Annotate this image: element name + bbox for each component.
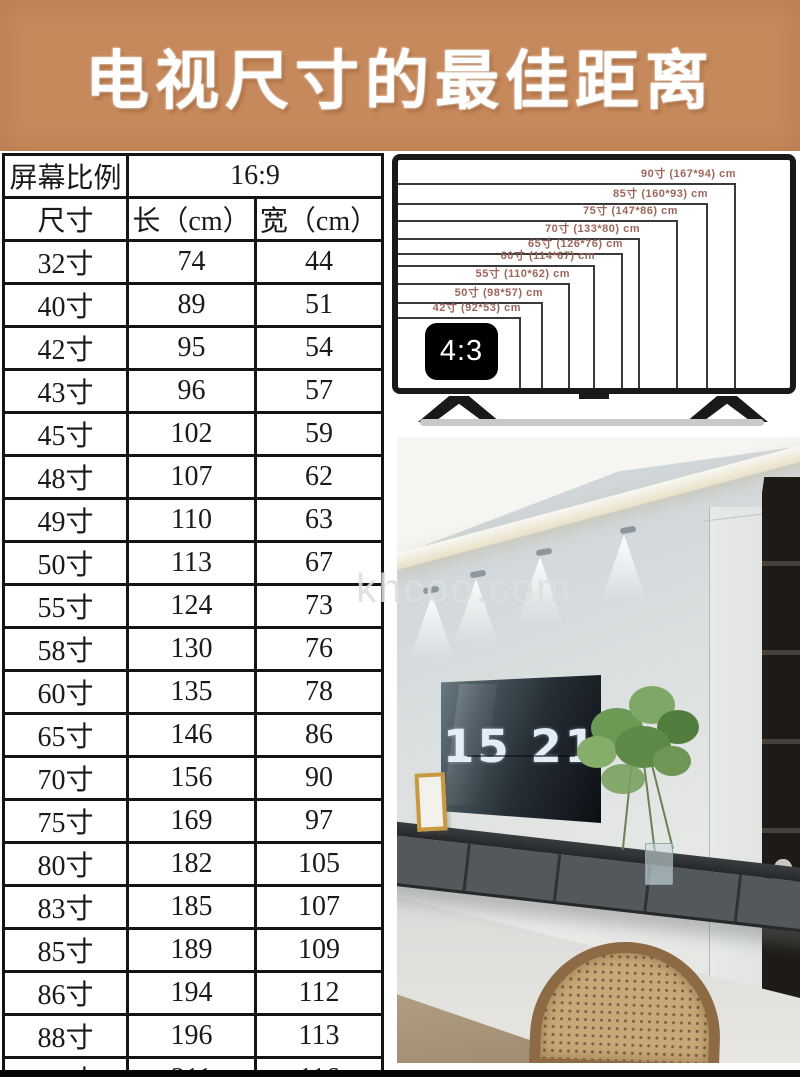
width-cell: 105	[256, 843, 383, 886]
table-row: 86寸194112	[4, 972, 383, 1015]
table-row: 88寸196113	[4, 1015, 383, 1058]
width-cell: 97	[256, 800, 383, 843]
size-cell: 83寸	[4, 886, 128, 929]
table-row: 58寸13076	[4, 628, 383, 671]
wall-panel	[709, 507, 762, 1059]
width-cell: 86	[256, 714, 383, 757]
width-cell: 107	[256, 886, 383, 929]
table-row: 45寸10259	[4, 413, 383, 456]
tv-size-label: 90寸 (167*94) cm	[641, 169, 736, 180]
watermark: khcoo.com	[356, 565, 572, 612]
tv-outline: 4:3 90寸 (167*94) cm85寸 (160*93) cm75寸 (1…	[392, 154, 796, 394]
title-banner: 电视尺寸的最佳距离	[0, 0, 800, 151]
size-table: 屏幕比例 16:9 尺寸 长（cm） 宽（cm） 32寸744440寸89514…	[2, 153, 384, 1077]
tv-size-rect	[398, 317, 521, 388]
size-cell: 48寸	[4, 456, 128, 499]
col-header-size: 尺寸	[4, 198, 128, 241]
length-cell: 110	[128, 499, 256, 542]
infographic-page: 电视尺寸的最佳距离 屏幕比例 16:9 尺寸 长（cm） 宽（cm） 32寸74…	[0, 0, 800, 1077]
table-row: 70寸15690	[4, 757, 383, 800]
table-row: 65寸14686	[4, 714, 383, 757]
ratio-label-cell: 屏幕比例	[4, 155, 128, 198]
table-row: 42寸9554	[4, 327, 383, 370]
size-cell: 80寸	[4, 843, 128, 886]
table-header-ratio-row: 屏幕比例 16:9	[4, 155, 383, 198]
tv-size-label: 70寸 (133*80) cm	[545, 224, 640, 235]
width-cell: 59	[256, 413, 383, 456]
width-cell: 78	[256, 671, 383, 714]
length-cell: 156	[128, 757, 256, 800]
width-cell: 57	[256, 370, 383, 413]
table-body: 32寸744440寸895142寸955443寸965745寸1025948寸1…	[4, 241, 383, 1077]
length-cell: 113	[128, 542, 256, 585]
width-cell: 90	[256, 757, 383, 800]
tv-size-label: 42寸 (92*53) cm	[433, 303, 521, 314]
plant-vase	[645, 843, 673, 885]
size-cell: 60寸	[4, 671, 128, 714]
length-cell: 189	[128, 929, 256, 972]
table-row: 75寸16997	[4, 800, 383, 843]
length-cell: 95	[128, 327, 256, 370]
length-cell: 124	[128, 585, 256, 628]
size-cell: 50寸	[4, 542, 128, 585]
tv-size-diagram: 4:3 90寸 (167*94) cm85寸 (160*93) cm75寸 (1…	[392, 154, 798, 434]
tv-size-label: 65寸 (126*76) cm	[528, 239, 623, 250]
length-cell: 135	[128, 671, 256, 714]
table-row: 55寸12473	[4, 585, 383, 628]
tv-size-table: 屏幕比例 16:9 尺寸 长（cm） 宽（cm） 32寸744440寸89514…	[2, 153, 381, 1077]
table-row: 50寸11367	[4, 542, 383, 585]
length-cell: 194	[128, 972, 256, 1015]
width-cell: 51	[256, 284, 383, 327]
tv-size-label: 50寸 (98*57) cm	[455, 288, 543, 299]
size-cell: 65寸	[4, 714, 128, 757]
length-cell: 89	[128, 284, 256, 327]
table-row: 48寸10762	[4, 456, 383, 499]
length-cell: 74	[128, 241, 256, 284]
size-cell: 75寸	[4, 800, 128, 843]
width-cell: 109	[256, 929, 383, 972]
width-cell: 62	[256, 456, 383, 499]
length-cell: 130	[128, 628, 256, 671]
size-cell: 58寸	[4, 628, 128, 671]
plant-foliage	[577, 736, 617, 768]
size-cell: 70寸	[4, 757, 128, 800]
size-cell: 40寸	[4, 284, 128, 327]
length-cell: 107	[128, 456, 256, 499]
size-cell: 42寸	[4, 327, 128, 370]
tv-size-label: 85寸 (160*93) cm	[613, 189, 708, 200]
size-cell: 49寸	[4, 499, 128, 542]
tv-size-label: 75寸 (147*86) cm	[583, 206, 678, 217]
picture-frame	[415, 772, 448, 831]
width-cell: 63	[256, 499, 383, 542]
size-cell: 86寸	[4, 972, 128, 1015]
bottom-bar	[0, 1070, 800, 1077]
width-cell: 44	[256, 241, 383, 284]
table-row: 40寸8951	[4, 284, 383, 327]
size-cell: 32寸	[4, 241, 128, 284]
length-cell: 102	[128, 413, 256, 456]
potted-plant	[557, 680, 702, 885]
width-cell: 76	[256, 628, 383, 671]
tv-shadow	[420, 419, 764, 426]
page-title: 电视尺寸的最佳距离	[85, 30, 715, 122]
size-cell: 88寸	[4, 1015, 128, 1058]
plant-foliage	[653, 746, 691, 776]
size-cell: 45寸	[4, 413, 128, 456]
tv-size-label: 55寸 (110*62) cm	[476, 269, 570, 280]
size-cell: 43寸	[4, 370, 128, 413]
table-row: 43寸9657	[4, 370, 383, 413]
width-cell: 113	[256, 1015, 383, 1058]
width-cell: 112	[256, 972, 383, 1015]
tv-size-label: 60寸 (114*67) cm	[501, 251, 595, 262]
table-row: 83寸185107	[4, 886, 383, 929]
plant-foliage	[601, 764, 645, 794]
size-cell: 55寸	[4, 585, 128, 628]
width-cell: 54	[256, 327, 383, 370]
col-header-length: 长（cm）	[128, 198, 256, 241]
length-cell: 96	[128, 370, 256, 413]
table-row: 80寸182105	[4, 843, 383, 886]
tv-feet	[392, 394, 796, 430]
length-cell: 146	[128, 714, 256, 757]
ratio-value-cell: 16:9	[128, 155, 383, 198]
table-row: 85寸189109	[4, 929, 383, 972]
table-row: 32寸7444	[4, 241, 383, 284]
length-cell: 169	[128, 800, 256, 843]
length-cell: 185	[128, 886, 256, 929]
table-row: 60寸13578	[4, 671, 383, 714]
tv-screen: 4:3 90寸 (167*94) cm85寸 (160*93) cm75寸 (1…	[398, 160, 790, 388]
col-header-width: 宽（cm）	[256, 198, 383, 241]
length-cell: 182	[128, 843, 256, 886]
table-row: 49寸11063	[4, 499, 383, 542]
length-cell: 196	[128, 1015, 256, 1058]
size-cell: 85寸	[4, 929, 128, 972]
table-header-columns-row: 尺寸 长（cm） 宽（cm）	[4, 198, 383, 241]
living-room-photo: 15 21	[397, 437, 800, 1063]
